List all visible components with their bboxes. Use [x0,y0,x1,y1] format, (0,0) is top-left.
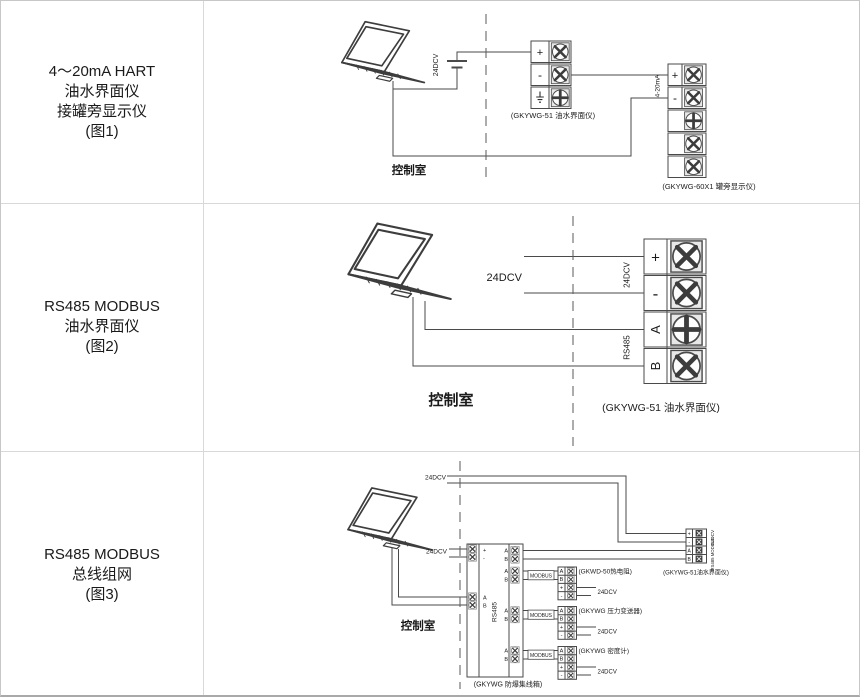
device2-terminal-block: A B + - [558,607,577,640]
terminal-label: A [560,649,564,655]
modbus-label: MODBUS [530,613,553,619]
screw-terminal-icon [567,592,574,599]
screw-terminal-icon [511,655,519,663]
bus-vertical-label: RS485 MODBUS [710,537,715,570]
terminal-label: B [560,657,564,663]
device-power-label: 24DCV [598,629,617,635]
device-power-label: 24DCV [598,669,617,675]
bus-b-wire [413,297,644,366]
fig2-wires [413,257,644,367]
screw-terminal-icon [671,241,702,272]
screw-terminal-icon [671,314,702,345]
fig2-meter-terminal-block: + - A B [644,239,706,384]
power-left-label: 24DCV [426,549,448,556]
hub-port-label: B [504,657,508,663]
screw-terminal-icon [511,575,519,583]
hub-terminal-label: + [483,548,486,554]
screw-terminal-icon [551,89,569,107]
terminal-label: B [560,617,564,623]
terminal-label: + [560,625,563,631]
screw-terminal-icon [567,607,574,614]
screw-terminal-icon [696,547,702,553]
bus-a-wire [425,301,644,330]
battery-positive-wire [457,52,531,61]
modbus-label: MODBUS [530,653,553,659]
loop-signal-label: 4-20mA [655,74,662,97]
screw-terminal-icon [551,43,569,61]
device1-power-wires [577,588,597,596]
screw-terminal-icon [567,615,574,622]
screw-terminal-icon [511,546,519,554]
screw-terminal-icon [671,277,702,308]
screw-terminal-icon [567,655,574,662]
hub-port-label: A [504,649,508,655]
terminal-label: A [560,569,564,575]
device1-terminal-block: A B + - [558,567,577,600]
fig1-diagram: + - (GKYWG-51 油水界面仪) 24DCV 4-20mA + [342,14,756,191]
block-caption: (GKYWG-60X1 罐旁显示仪) [662,181,756,191]
device3-terminal-block: A B + - [558,647,577,680]
battery-voltage-label: 24DCV [433,53,440,76]
screw-terminal-icon [567,664,574,671]
device-caption: (GKWD-50热电阻) [579,567,632,576]
screw-terminal-icon [468,553,476,561]
screw-terminal-icon [696,539,702,545]
terminal-label: + [560,585,563,591]
power-supply-label: 24DCV [487,272,523,284]
screw-terminal-icon [511,555,519,563]
hub-port-label: B [504,577,508,583]
fig3-hub-box: + - A B RS485 A B A B A B A [467,544,523,677]
screw-terminal-icon [685,89,703,107]
screw-terminal-icon [511,615,519,623]
terminal-label: B [560,577,564,583]
screw-terminal-icon [511,606,519,614]
screw-terminal-icon [468,601,476,609]
terminal-label: B [648,362,663,371]
terminal-label: + [537,47,543,59]
terminal-label: - [561,673,563,679]
screw-terminal-icon [567,647,574,654]
screw-terminal-icon [685,158,703,176]
screw-terminal-icon [685,135,703,153]
device2-power-wires [577,627,597,635]
terminal-label: + [688,531,691,537]
modbus-label: MODBUS [530,573,553,579]
terminal-label: - [561,594,563,600]
device-caption: (GKYWG 密度计) [579,646,630,655]
screw-terminal-icon [567,568,574,575]
hub-port-label: B [504,557,508,563]
fig1-meter-terminal-block: + - [531,41,571,109]
fig3-diagram: 24DCV 24DCV + - A B RS485 [348,461,729,689]
screw-terminal-icon [567,584,574,591]
hub-bus-vertical-label: RS485 [492,602,499,622]
screw-terminal-icon [468,593,476,601]
terminal-label: A [560,609,564,615]
laptop-icon [348,488,432,550]
device-caption: (GKYWG 压力变送器) [579,606,643,615]
wiring-diagram-sheet: 4～20mA HART 油水界面仪 接罐旁显示仪 (图1) RS485 MODB… [0,0,860,697]
screw-terminal-icon [685,112,703,130]
diagram-canvas: + - (GKYWG-51 油水界面仪) 24DCV 4-20mA + [1,1,860,697]
hub-terminal-label: - [483,556,485,562]
screw-terminal-icon [567,576,574,583]
terminal-label: + [651,250,660,267]
laptop-icon [342,22,425,83]
terminal-label: + [560,665,563,671]
laptop-bus-a-wire [399,549,468,597]
hub-port-label: B [504,617,508,623]
screw-terminal-icon [511,646,519,654]
device3-power-wires [577,667,597,675]
power-top-plus-wire [447,476,686,534]
fig1-display-terminal-block: + - [668,64,706,178]
laptop-icon [348,224,450,299]
block-caption: (GKYWG-51 油水界面仪) [602,401,720,414]
bus-vertical-label: RS485 [623,335,632,360]
screw-terminal-icon [511,567,519,575]
block-caption: (GKYWG 防爆集线箱) [474,680,542,689]
terminal-label: - [561,633,563,639]
power-top-label: 24DCV [425,475,447,482]
terminal-label: + [672,70,678,82]
screw-terminal-icon [685,66,703,84]
screw-terminal-icon [671,350,702,381]
hub-port-label: A [504,549,508,555]
power-vertical-label: 24DCV [623,261,632,287]
block-caption: (GKYWG-51 油水界面仪) [511,110,596,120]
screw-terminal-icon [567,624,574,631]
screw-terminal-icon [567,632,574,639]
screw-terminal-icon [567,672,574,679]
terminal-label: - [673,91,677,105]
hub-terminal-label: B [483,603,487,609]
screw-terminal-icon [696,556,702,562]
control-room-label: 控制室 [428,391,473,409]
screw-terminal-icon [551,66,569,84]
control-room-label: 控制室 [401,619,436,633]
block-caption: (GKYWG-51油水界面仪) [663,569,729,577]
modbus-tags: MODBUS MODBUS MODBUS [528,571,554,660]
device-power-label: 24DCV [598,590,617,596]
control-room-label: 控制室 [392,163,427,177]
hub-port-label: A [504,609,508,615]
hub-port-label: A [504,569,508,575]
hub-terminal-label: A [483,595,487,601]
terminal-label: - [538,68,542,82]
screw-terminal-icon [696,530,702,536]
terminal-label: A [648,325,663,334]
fig3-meter-terminal-block: + - A B [686,529,707,563]
fig2-diagram: 24DCV 24DCV RS485 + - A B (GKYWG-51 油水界面… [348,216,719,446]
terminal-label: - [653,285,659,304]
screw-terminal-icon [468,545,476,553]
